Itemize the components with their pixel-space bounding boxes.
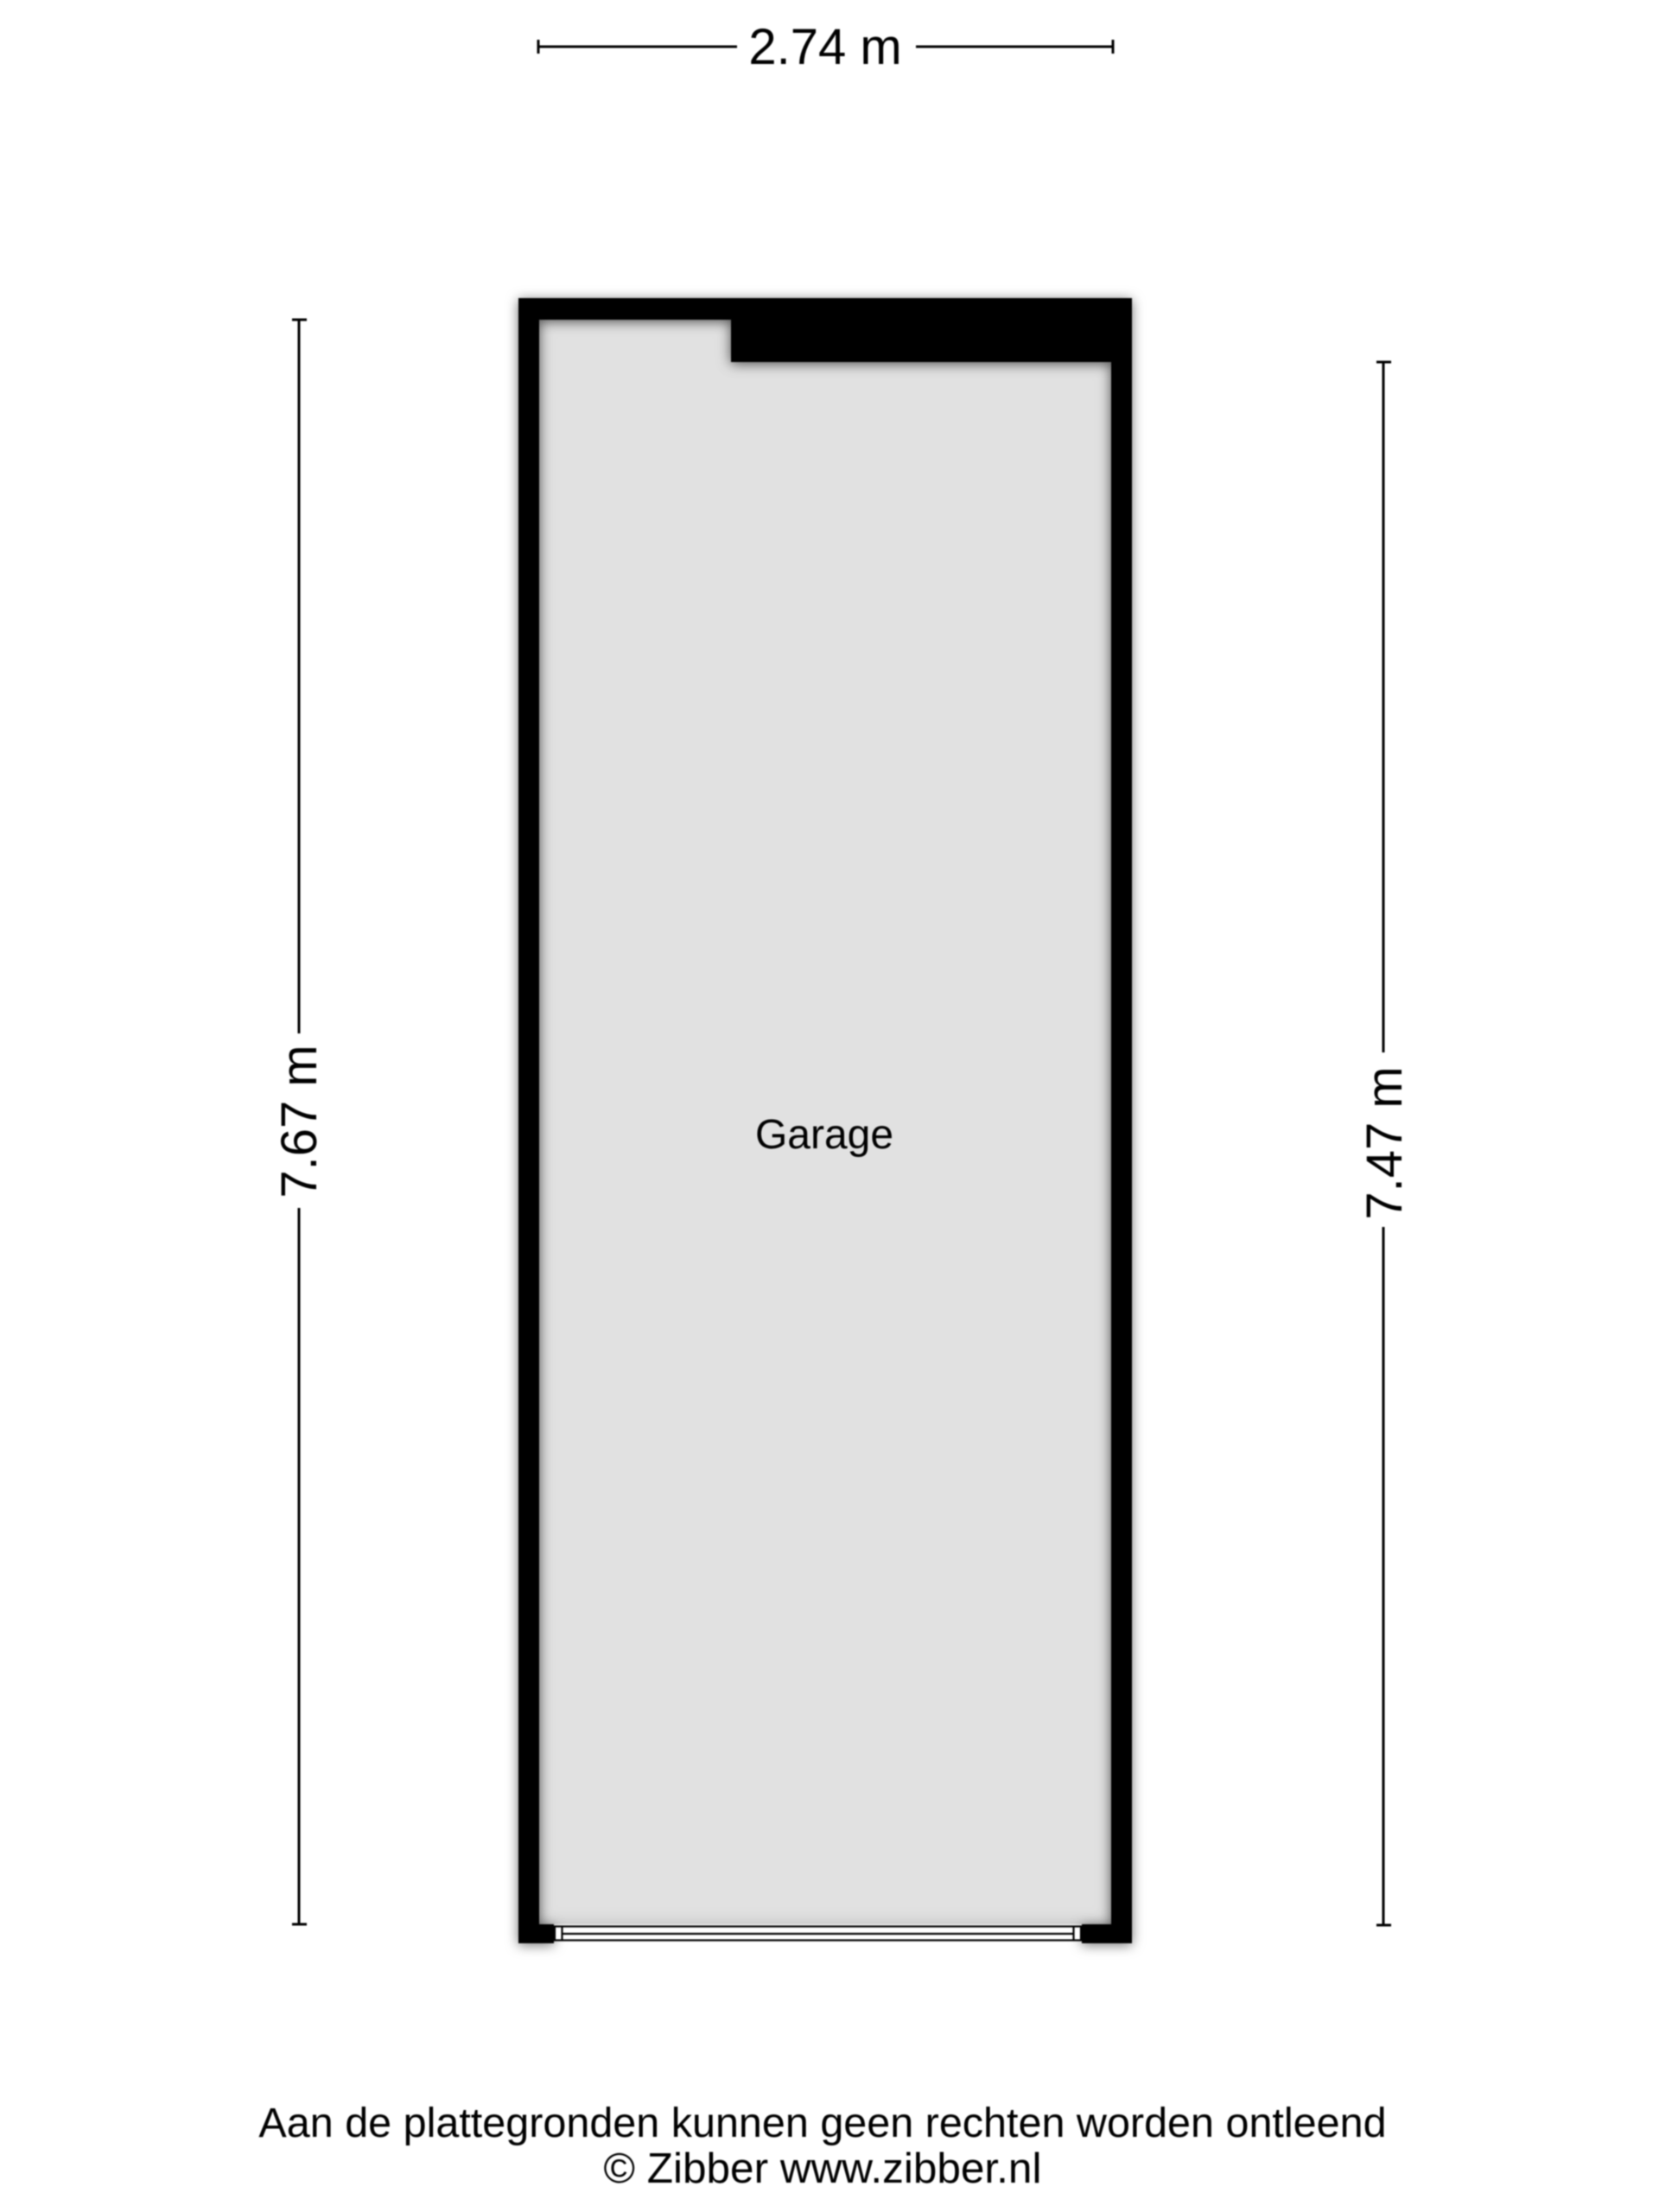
svg-text:© Zibber www.zibber.nl: © Zibber www.zibber.nl bbox=[604, 2145, 1042, 2192]
svg-text:2.74 m: 2.74 m bbox=[748, 19, 901, 75]
svg-text:7.67 m: 7.67 m bbox=[271, 1045, 327, 1198]
svg-text:Aan de plattegronden kunnen ge: Aan de plattegronden kunnen geen rechten… bbox=[258, 2100, 1386, 2146]
svg-text:Garage: Garage bbox=[755, 1112, 893, 1158]
svg-text:7.47 m: 7.47 m bbox=[1357, 1066, 1413, 1219]
